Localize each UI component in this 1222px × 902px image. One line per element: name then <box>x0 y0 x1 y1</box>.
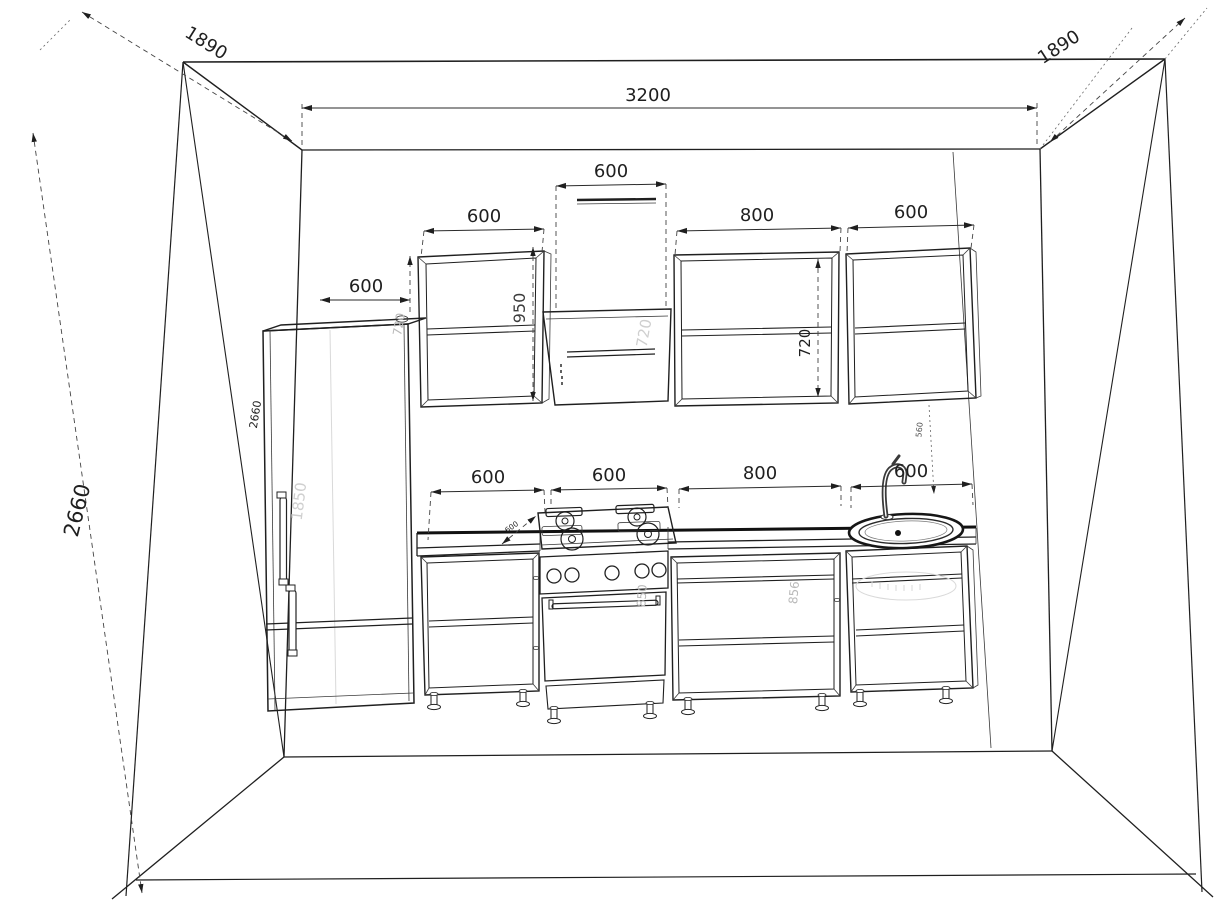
dimension-room-width: 3200 <box>302 85 1037 145</box>
room-width-label: 3200 <box>625 85 671 106</box>
fridge-height-label: 1850 <box>288 481 311 521</box>
stove-height-label: 850 <box>634 584 650 608</box>
base-cabinet-left <box>421 553 539 710</box>
stove: 850 <box>538 504 676 723</box>
drain-icon <box>895 530 901 536</box>
dimension-wall-cabinet-right-width: 600 <box>847 202 974 253</box>
ceiling-depth-left-label: 1890 <box>181 22 231 64</box>
dimension-hood-width: 600 <box>556 161 666 311</box>
dimension-ceiling-depth-left: 1890 <box>40 12 292 141</box>
dimension-wall-cabinet-left-width: 600 <box>421 206 544 257</box>
wall-cabinet-left-width-label: 600 <box>467 206 501 227</box>
dimension-base-cabinet2-width: 800 <box>679 463 841 508</box>
dimension-stove-width: 600 <box>551 465 668 508</box>
wall-cabinet-left-height-label: 950 <box>510 293 529 324</box>
dimension-corner-height: 2660 <box>247 400 264 430</box>
wall-cabinet-height-label: 720 <box>796 329 814 358</box>
dimension-fridge-width: 600 <box>320 256 410 312</box>
dimension-sink-cabinet-width: 600 <box>851 461 973 508</box>
sink-cabinet-width-label: 600 <box>894 461 928 482</box>
base-cabinet-height-label: 856 <box>786 581 802 605</box>
stove-width-label: 600 <box>592 465 626 486</box>
dimension-wall-cabinet-mid-width: 800 <box>675 205 841 255</box>
wall-cabinet-mid-width-label: 800 <box>740 205 774 226</box>
wall-cabinet-mid <box>674 252 839 406</box>
base-cabinet2-width-label: 800 <box>743 463 777 484</box>
wall-cabinet-right-width-label: 600 <box>894 202 928 223</box>
room-outline <box>112 8 1213 899</box>
dimension-room-height: 2660 <box>33 133 142 893</box>
base-cabinet-mid: 856 <box>671 553 840 715</box>
fridge-width-label: 600 <box>349 276 383 297</box>
base-cabinet1-width-label: 600 <box>471 467 505 488</box>
sink-cabinet <box>846 546 978 707</box>
hood-height-label: 720 <box>633 317 656 348</box>
dimension-wall-cabinet-left-height: 950 <box>510 247 533 401</box>
ceiling-depth-right-label: 1890 <box>1034 26 1084 69</box>
range-hood: 720 <box>543 309 671 405</box>
kitchen-design-viewport[interactable]: 3200 1890 1890 2660 2660 1850 <box>0 0 1222 902</box>
room-height-label: 2660 <box>59 481 95 539</box>
wall-cabinet-left: 720 <box>390 251 551 407</box>
dimension-counter-depth: 600 <box>502 516 536 544</box>
fridge-lower-handle <box>289 590 296 654</box>
drawing-canvas: 3200 1890 1890 2660 2660 1850 <box>0 0 1222 902</box>
dimension-ceiling-depth-right: 1890 <box>1034 18 1185 142</box>
stove-knobs <box>547 563 666 583</box>
corner-height-label: 2660 <box>247 400 264 430</box>
wall-cabinet-left-height-partial-label: 720 <box>390 312 408 337</box>
wall-gap-label: 560 <box>914 422 925 438</box>
dimension-base-cabinet1-width: 600 <box>428 467 545 540</box>
fridge-upper-handle <box>280 497 287 583</box>
hood-width-label: 600 <box>594 161 628 182</box>
